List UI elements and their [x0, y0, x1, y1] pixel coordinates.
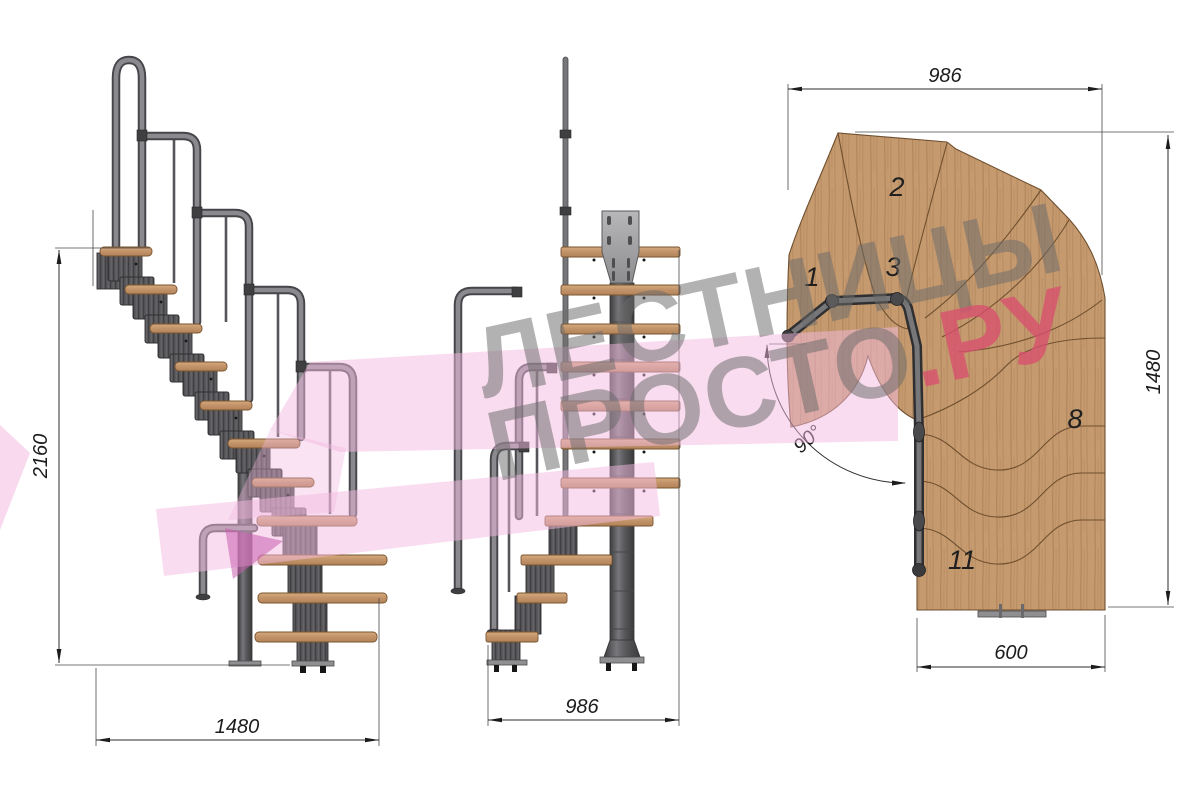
- plate-slot: [627, 258, 630, 268]
- drawing-page: 2160 1480: [0, 0, 1200, 790]
- post-collar: [560, 207, 571, 215]
- anchor-bolt: [632, 663, 637, 671]
- bracket-tick: [999, 604, 1002, 618]
- plan-base-bracket: [978, 611, 1046, 617]
- rail-clamp: [192, 207, 202, 218]
- tread: [258, 593, 387, 603]
- rail-clamp: [296, 361, 306, 372]
- anchor-bolt: [606, 663, 611, 671]
- dim-label-986: 986: [928, 65, 962, 87]
- step-number-2: 2: [888, 172, 904, 202]
- dim-label-986: 986: [565, 696, 599, 718]
- rail-end-cap: [913, 564, 926, 577]
- plate-slot: [628, 216, 632, 225]
- rail-clamp: [137, 130, 147, 141]
- step-number-8: 8: [1067, 404, 1082, 434]
- rail-joint: [914, 511, 925, 531]
- tread: [200, 401, 252, 410]
- tread: [517, 593, 567, 603]
- step-number-11: 11: [948, 545, 976, 575]
- anchor-bolt: [320, 666, 326, 673]
- dim-label-1480: 1480: [1143, 350, 1165, 395]
- dim-label-2160: 2160: [30, 434, 52, 480]
- rail-foot: [196, 594, 210, 600]
- anchor-bolt: [512, 665, 517, 672]
- ribbon-left-tip: [0, 425, 30, 530]
- plate-slot: [612, 258, 615, 268]
- module-base: [292, 661, 334, 666]
- staircase-technical-drawing: 2160 1480: [0, 0, 1200, 790]
- rail-joint: [914, 422, 925, 442]
- dim-label-1480: 1480: [215, 716, 260, 738]
- tread: [125, 285, 177, 294]
- rail-foot: [451, 588, 465, 594]
- rail-clamp: [244, 284, 254, 295]
- column-base: [600, 657, 644, 663]
- module-base: [487, 660, 527, 665]
- anchor-bolt: [494, 665, 499, 672]
- post-collar: [560, 130, 571, 138]
- tread: [486, 632, 538, 642]
- dim-label-600: 600: [994, 642, 1027, 664]
- column-flare: [604, 640, 640, 657]
- plate-slot: [607, 216, 611, 225]
- plate-slot: [607, 236, 611, 245]
- tread: [255, 632, 377, 642]
- anchor-bolt: [300, 666, 306, 673]
- plate-slot: [628, 236, 632, 245]
- bracket-tick: [1021, 604, 1024, 618]
- tread: [521, 555, 612, 565]
- rail-clamp: [512, 287, 522, 297]
- tread: [175, 362, 227, 371]
- tread: [150, 324, 202, 333]
